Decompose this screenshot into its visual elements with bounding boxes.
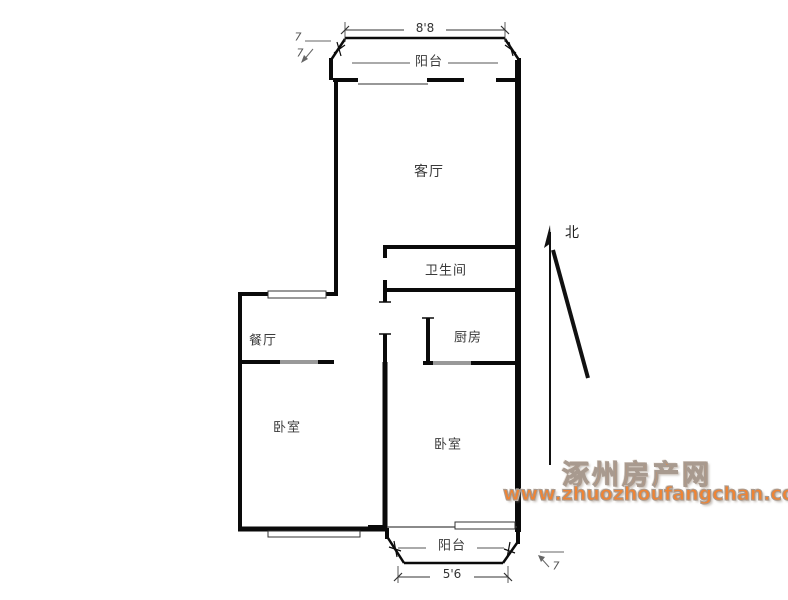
corner-mark-bottom-right-leader xyxy=(538,552,564,567)
north-label: 北 xyxy=(565,226,579,240)
bedroom-left-window xyxy=(268,531,360,537)
room-label-dining-room: 餐厅 xyxy=(249,335,277,348)
dimension-top-value: 8'8 xyxy=(414,22,437,34)
bedroom-right-window xyxy=(455,522,515,529)
floor-plan-page: 阳台 客厅 卫生间 餐厅 厨房 卧室 卧室 阳台 8'8 5'6 7 7 7 北… xyxy=(0,0,788,600)
room-label-balcony-bottom: 阳台 xyxy=(438,540,466,553)
watermark-site-url: www.zhuozhoufangchan.com xyxy=(503,483,788,505)
north-arrow-icon xyxy=(544,225,588,465)
room-label-bedroom-left: 卧室 xyxy=(273,422,301,435)
room-label-living-room: 客厅 xyxy=(414,165,444,179)
dimension-bottom-value: 5'6 xyxy=(441,568,464,580)
living-room-north-wall xyxy=(333,80,521,84)
dining-window xyxy=(268,291,326,298)
room-label-bathroom: 卫生间 xyxy=(425,265,467,278)
room-label-kitchen: 厨房 xyxy=(454,332,482,345)
room-label-bedroom-right: 卧室 xyxy=(434,439,462,452)
bedroom-right-south-wall xyxy=(368,522,517,529)
corner-mark-top-a: 7 xyxy=(295,32,302,43)
floor-plan-drawing xyxy=(0,0,788,600)
room-label-balcony-top: 阳台 xyxy=(415,56,443,69)
hallway-wall-stubs xyxy=(379,290,391,363)
corner-mark-bottom: 7 xyxy=(553,561,560,572)
corner-mark-top-b: 7 xyxy=(297,48,304,59)
corner-mark-top-left-leader xyxy=(301,41,331,63)
